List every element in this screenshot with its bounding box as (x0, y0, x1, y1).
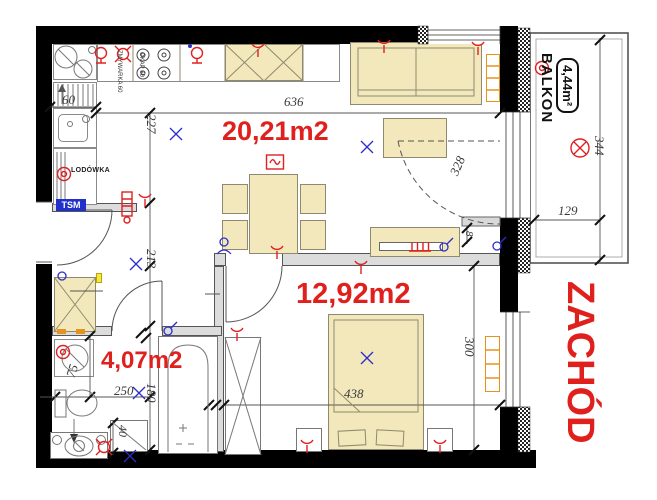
dim-living-width: 636 (284, 94, 304, 110)
dim-balcony-door-swing: 328 (446, 154, 469, 178)
dining-chair (300, 184, 326, 214)
pillow (338, 429, 367, 446)
kitchen-counter (97, 44, 340, 82)
dim-sink-width: 60 (62, 92, 75, 108)
light-point-icon (170, 128, 182, 140)
dim-bedroom-width: 438 (344, 386, 364, 402)
dining-chair (222, 184, 248, 214)
meter-box-label: TSM (56, 199, 86, 211)
hall-wardrobe (54, 277, 96, 332)
wall-bottom (36, 450, 536, 468)
light-point-icon (130, 258, 142, 270)
yellow-marker (96, 273, 102, 283)
balcony-door (500, 112, 530, 218)
partition-living-bedroom-left (214, 253, 226, 266)
coffee-table (383, 118, 447, 158)
ceiling-lamp-icon (571, 139, 589, 157)
wall-right-middle (500, 218, 518, 312)
dim-bathtub-length: 180 (143, 383, 159, 403)
bedroom-area-label: 12,92m2 (296, 278, 411, 311)
wall-left-upper (36, 26, 52, 202)
dishwasher-label: ZMYWARKA 60 (116, 50, 122, 92)
bedroom-door (226, 266, 282, 322)
tv (379, 242, 443, 251)
dining-chair (300, 220, 326, 250)
dim-balcony-width: 129 (558, 203, 578, 219)
kitchen-upper-cabinets (225, 44, 303, 81)
wall-left-lower (36, 264, 52, 452)
lamp-icon (139, 194, 151, 207)
fridge-label: LODÓWKA (71, 167, 110, 174)
nightstand (427, 428, 453, 452)
bathroom-area-label: 4,07m2 (101, 347, 182, 375)
dim-wall-offset: 8 (463, 231, 475, 237)
fridge (53, 148, 97, 205)
wall-stub (462, 217, 500, 226)
living-area-label: 20,21m2 (222, 116, 329, 147)
dish-rack-cabinet (53, 82, 97, 108)
kitchen-sink (58, 114, 88, 142)
dim-hall-depth: 213 (143, 249, 159, 269)
hood-label: OKAP 60 (138, 52, 144, 77)
pillow (376, 429, 405, 446)
dim-shower-width: 40 (115, 425, 130, 437)
floor-plan: 20,21m2 12,92m2 4,07m2 BALKON 4,44m² ZAC… (0, 0, 657, 500)
washbasin-cabinet (50, 432, 108, 459)
dim-bathroom-width: 250 (114, 383, 134, 399)
orientation-west-label: ZACHÓD (558, 281, 601, 444)
balcony-area-badge: 4,44m² (556, 58, 579, 113)
dining-chair (222, 220, 248, 250)
wall-right-upper (500, 26, 518, 112)
dim-bedroom-depth: 300 (461, 337, 477, 357)
bathroom-door (112, 281, 162, 331)
nightstand (296, 428, 322, 452)
balcony-name-label: BALKON (538, 53, 555, 123)
dim-balcony-length: 344 (591, 136, 607, 156)
wall-right-lower (500, 407, 518, 452)
light-point-icon (361, 141, 373, 153)
bedroom-window (500, 312, 530, 407)
dining-table (249, 174, 298, 254)
radiator-bedroom (485, 336, 500, 392)
dim-kitchen-depth: 227 (143, 114, 159, 134)
bedroom-wardrobe (225, 337, 261, 455)
radiator-living (486, 54, 500, 102)
thermostat-icon (267, 155, 284, 169)
partition-bathroom-right (162, 326, 222, 336)
washer-dryer-stack (53, 44, 97, 80)
sofa (350, 42, 482, 105)
